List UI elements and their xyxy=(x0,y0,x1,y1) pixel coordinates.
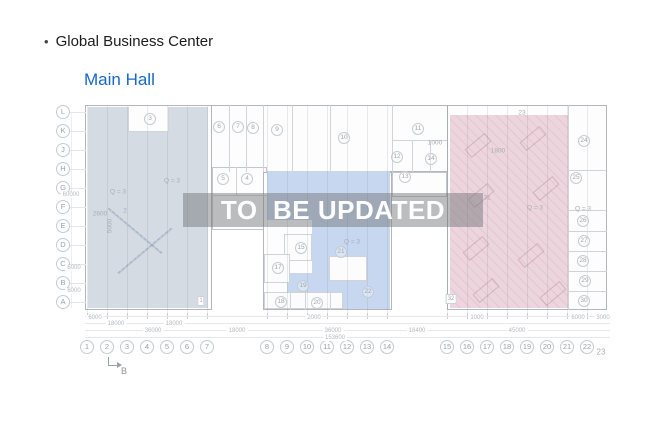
interior-wall xyxy=(229,105,230,172)
interior-wall xyxy=(412,140,413,172)
room-number-circle: 20 xyxy=(311,297,323,309)
dimension-label: 6000 xyxy=(569,315,586,321)
watermark-band: TO BE UPDATED xyxy=(183,193,483,227)
room-number-circle: 19 xyxy=(297,280,309,292)
grid-row-leader-line xyxy=(70,112,86,113)
plan-annotation: 1000 xyxy=(428,140,442,147)
grid-row-leader-line xyxy=(70,207,86,208)
room-number-circle: 26 xyxy=(577,215,589,227)
col-label-circle: 9 xyxy=(280,340,294,354)
col-label-circle: 14 xyxy=(380,340,394,354)
row-label-circle: A xyxy=(56,295,70,309)
room-number-circle: 28 xyxy=(577,255,589,267)
interior-wall xyxy=(168,107,169,131)
plan-annotation: 1800 xyxy=(491,148,505,155)
room-number-circle: 12 xyxy=(391,151,403,163)
col-label-circle: 6 xyxy=(180,340,194,354)
dimension-label: 6000 xyxy=(65,265,82,271)
dimension-label: 36000 xyxy=(323,328,344,334)
interior-wall xyxy=(128,131,169,132)
dimension-label: 18000 xyxy=(164,321,185,327)
interior-wall xyxy=(305,292,306,310)
room-number-circle: 11 xyxy=(412,123,424,135)
dimension-label: 36000 xyxy=(143,328,164,334)
plan-annotation: 32 xyxy=(446,294,457,304)
room-number-circle: 18 xyxy=(275,296,287,308)
interior-wall xyxy=(568,251,607,252)
col-label-circle: 7 xyxy=(200,340,214,354)
watermark-text: TO BE UPDATED xyxy=(221,195,445,226)
col-label-circle: 2 xyxy=(100,340,114,354)
row-label-circle: H xyxy=(56,162,70,176)
grid-row-leader-line xyxy=(70,150,86,151)
grid-row-leader-line xyxy=(70,302,86,303)
col-label-circle: 18 xyxy=(500,340,514,354)
col-label-circle: 19 xyxy=(520,340,534,354)
dimension-label: 6000 xyxy=(65,288,82,294)
dimension-label: 1000 xyxy=(468,315,485,321)
row-label-circle: K xyxy=(56,124,70,138)
col-label-circle: 11 xyxy=(320,340,334,354)
plan-annotation: 1 xyxy=(197,296,204,306)
interior-wall xyxy=(236,167,237,195)
interior-wall xyxy=(246,105,247,172)
room-number-circle: 24 xyxy=(578,135,590,147)
room-number-circle: 8 xyxy=(247,122,259,134)
interior-wall xyxy=(568,271,607,272)
col-label-circle: 8 xyxy=(260,340,274,354)
interior-wall xyxy=(330,105,331,172)
section-marker-line-horizontal xyxy=(108,365,117,366)
grid-row-leader-line xyxy=(70,131,86,132)
row-label-circle: F xyxy=(56,200,70,214)
section-marker-label: B xyxy=(121,366,127,376)
room-number-circle: 10 xyxy=(338,132,350,144)
grid-column-line xyxy=(547,106,548,313)
dimension-line xyxy=(85,337,610,338)
interior-wall xyxy=(263,105,264,172)
grid-column-line xyxy=(87,106,88,313)
col-label-circle: 20 xyxy=(540,340,554,354)
room-number-circle: 4 xyxy=(241,173,253,185)
plan-annotation: 2 xyxy=(123,208,127,215)
plan-annotation: 5000 xyxy=(107,219,114,233)
col-label-circle: 12 xyxy=(340,340,354,354)
plan-annotation: Q = 3 xyxy=(575,206,591,213)
plan-annotation: 23 xyxy=(518,110,525,117)
col-label-circle: 21 xyxy=(560,340,574,354)
room-number-circle: 30 xyxy=(578,295,590,307)
room-number-circle: 15 xyxy=(295,242,307,254)
col-label-circle: 4 xyxy=(140,340,154,354)
interior-wall xyxy=(568,291,607,292)
col-label-circle: 10 xyxy=(300,340,314,354)
col-label-circle: 22 xyxy=(580,340,594,354)
dimension-label: 45000 xyxy=(507,328,528,334)
room-number-circle: 17 xyxy=(272,262,284,274)
row-label-circle: L xyxy=(56,105,70,119)
left-dimension-line xyxy=(71,112,72,308)
white-room-center xyxy=(329,256,367,281)
grid-row-leader-line xyxy=(70,226,86,227)
row-label-circle: E xyxy=(56,219,70,233)
dimension-label: 18400 xyxy=(407,328,428,334)
grid-row-leader-line xyxy=(70,245,86,246)
room-number-circle: 29 xyxy=(579,275,591,287)
grid-column-line xyxy=(167,106,168,313)
col-label-circle: 16 xyxy=(460,340,474,354)
room-number-circle: 5 xyxy=(217,173,229,185)
plan-annotation: Q = 3 xyxy=(110,189,126,196)
grid-column-line xyxy=(107,106,108,313)
col-label-circle: 5 xyxy=(160,340,174,354)
dimension-line xyxy=(85,316,610,317)
room-number-circle: 7 xyxy=(232,121,244,133)
col-label-circle: 13 xyxy=(360,340,374,354)
dimension-label: 18000 xyxy=(106,321,127,327)
interior-wall xyxy=(128,107,129,131)
room-number-circle: 14 xyxy=(425,153,437,165)
col-label: 23 xyxy=(597,348,606,357)
grid-column-line xyxy=(507,106,508,313)
plan-annotation: 31 xyxy=(483,195,490,202)
room-number-circle: 13 xyxy=(399,171,411,183)
col-label-circle: 15 xyxy=(440,340,454,354)
row-label-circle: J xyxy=(56,143,70,157)
dimension-label: 3000 xyxy=(594,315,611,321)
dimension-label: 2000 xyxy=(305,315,322,321)
floor-plan: TO BE UPDATED B LKJHGFEDCBA1234567891011… xyxy=(0,0,660,440)
interior-wall xyxy=(568,105,569,310)
plan-annotation: Q = 3 xyxy=(527,205,543,212)
plan-annotation: 2600 xyxy=(93,211,107,218)
interior-wall xyxy=(330,292,331,310)
col-label-circle: 17 xyxy=(480,340,494,354)
room-number-circle: 22 xyxy=(362,286,374,298)
interior-wall xyxy=(290,292,291,310)
interior-wall xyxy=(568,170,607,171)
grid-row-leader-line xyxy=(70,169,86,170)
room-number-circle: 21 xyxy=(335,246,347,258)
dimension-label: 18000 xyxy=(227,328,248,334)
room-number-circle: 25 xyxy=(570,172,582,184)
room-number-circle: 3 xyxy=(144,113,156,125)
col-label-circle: 3 xyxy=(120,340,134,354)
plan-annotation: Q = 3 xyxy=(164,178,180,185)
plan-annotation: Q = 3 xyxy=(344,239,360,246)
dimension-label: 6000 xyxy=(86,315,103,321)
dimension-line xyxy=(85,330,610,331)
dimension-label: 60000 xyxy=(61,192,82,198)
grid-row-leader-line xyxy=(70,283,86,284)
row-label-circle: D xyxy=(56,238,70,252)
interior-wall xyxy=(292,105,293,172)
grid-row-leader-line xyxy=(70,188,86,189)
room-number-circle: 9 xyxy=(271,124,283,136)
grid-column-line xyxy=(147,106,148,313)
col-label-circle: 1 xyxy=(80,340,94,354)
room-number-circle: 6 xyxy=(213,121,225,133)
interior-wall xyxy=(568,231,607,232)
room-number-circle: 27 xyxy=(578,235,590,247)
slide-page: { "header": { "bullet": "•", "title": "G… xyxy=(0,0,660,440)
dimension-label: 153600 xyxy=(323,335,347,341)
